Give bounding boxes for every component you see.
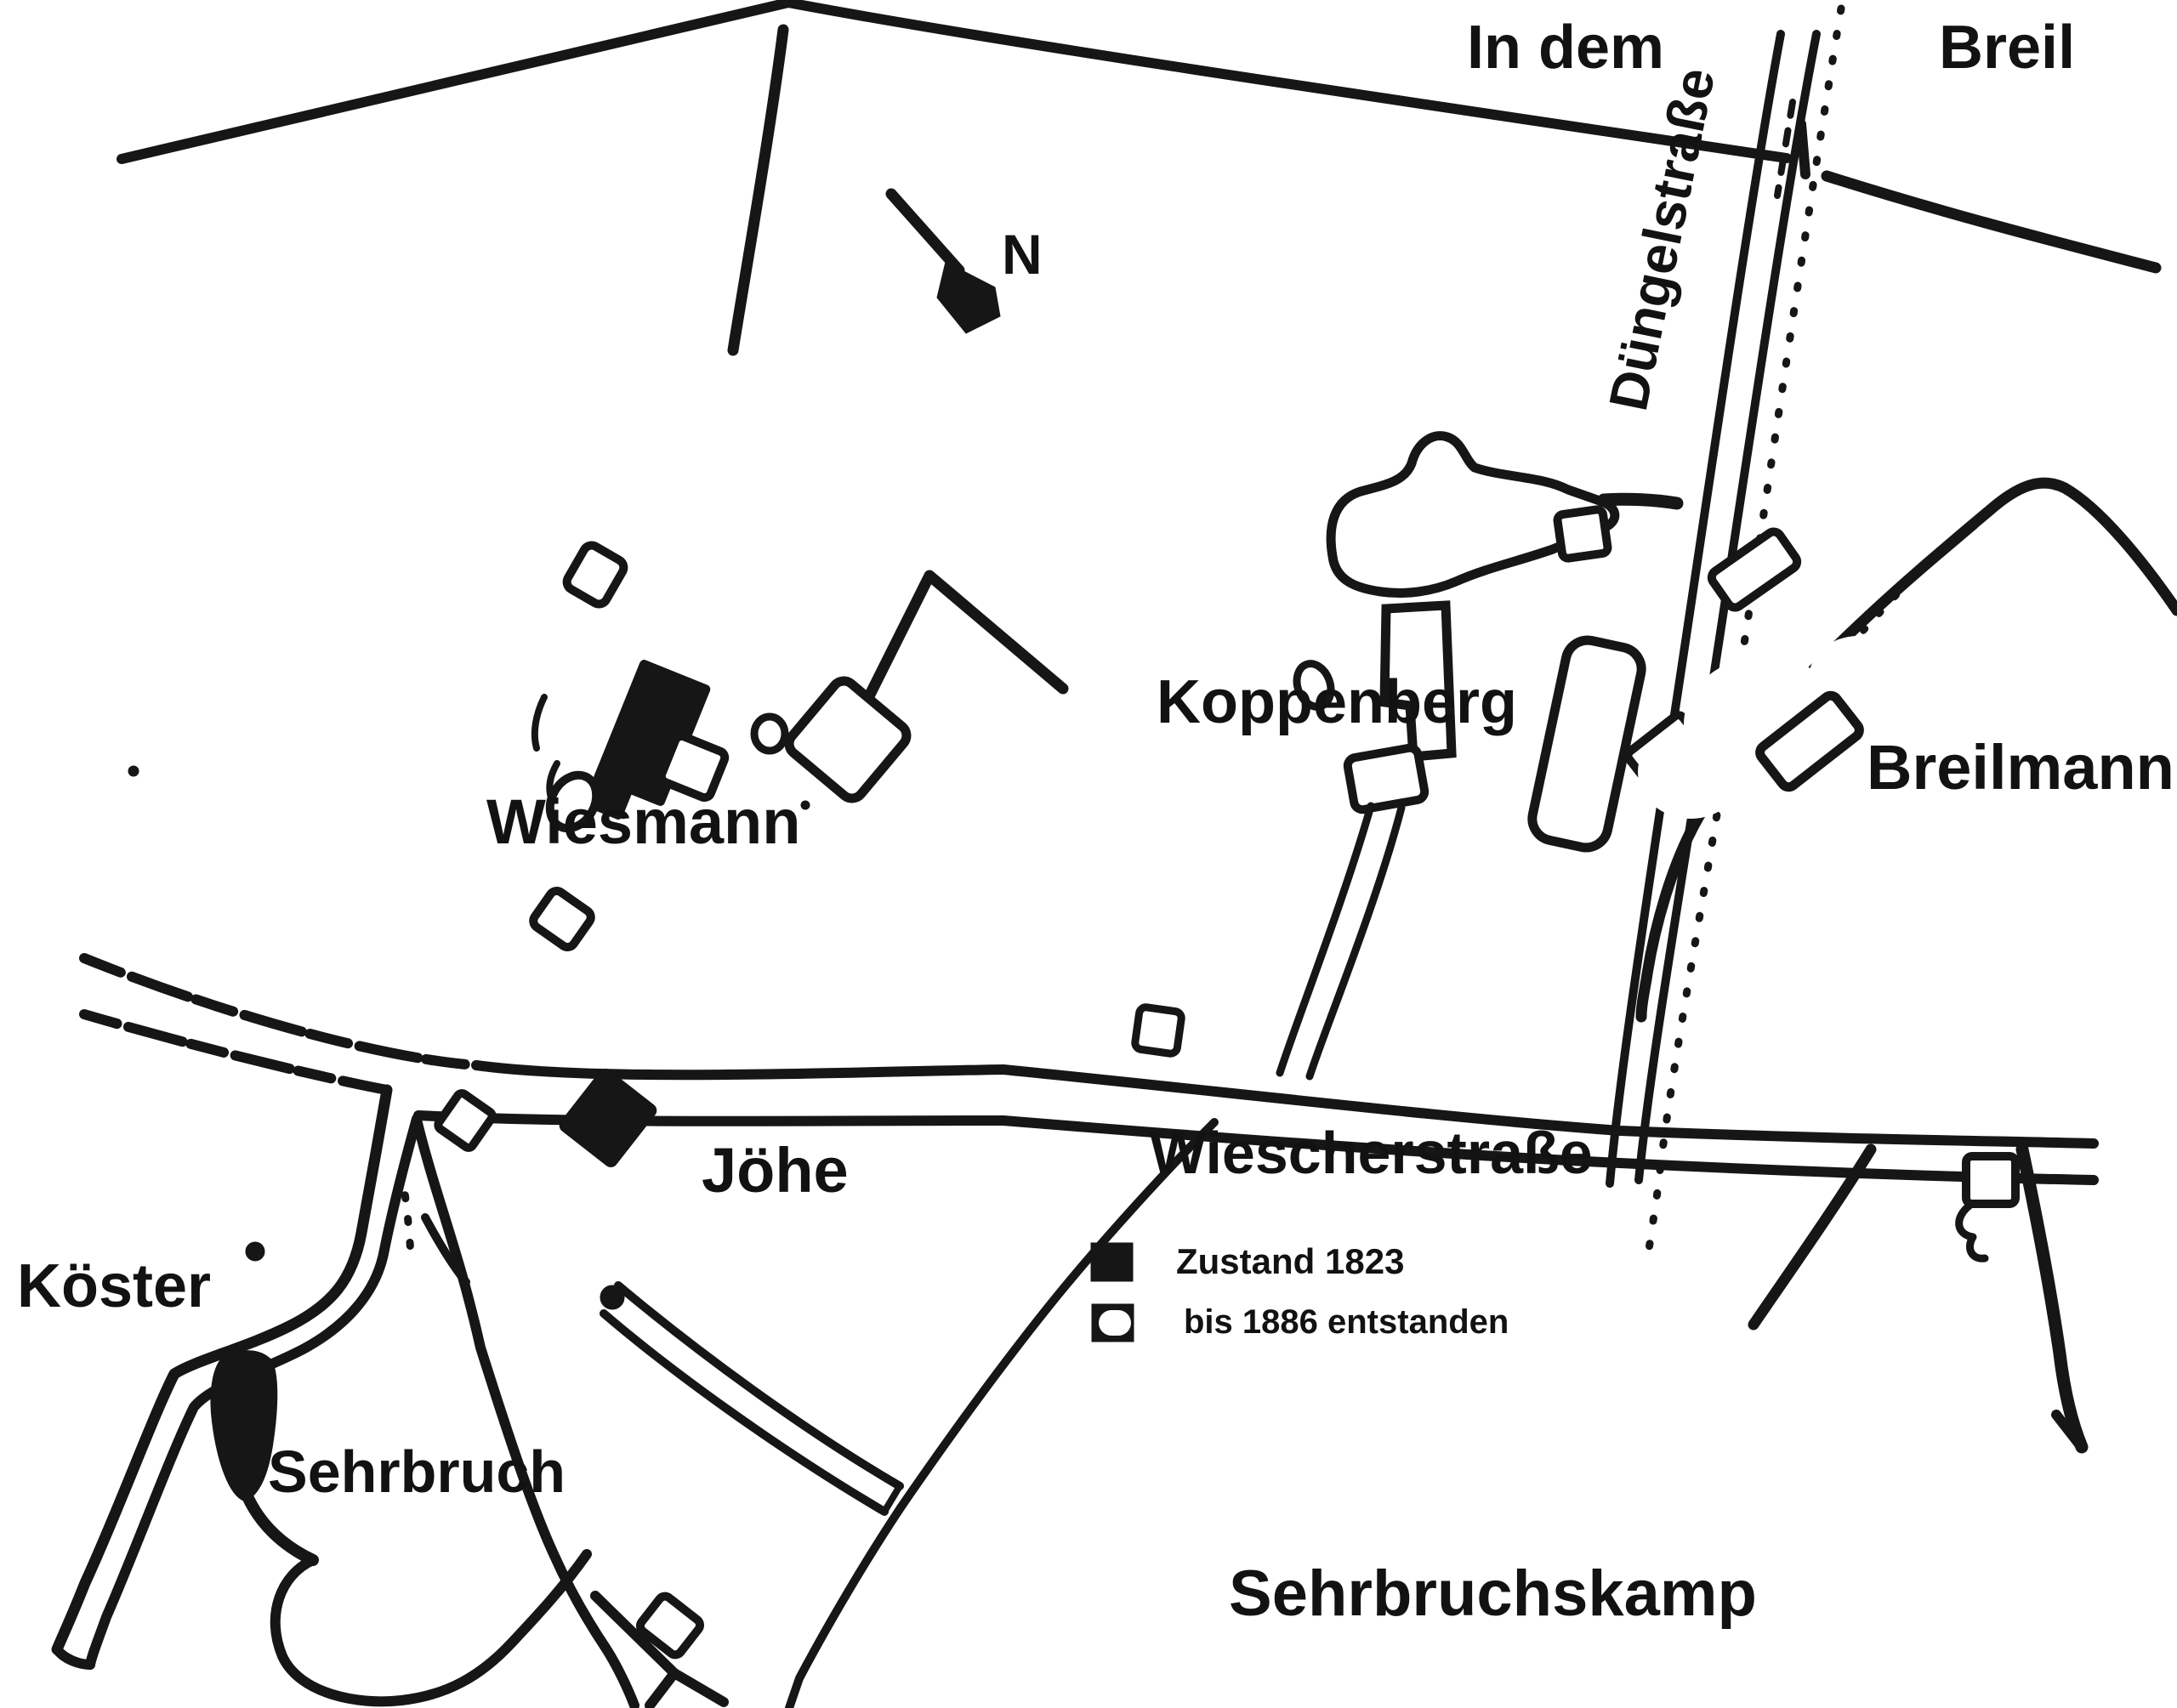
wiesmann-small-circle [754, 717, 785, 751]
legend-symbol-filled-square [1091, 1243, 1133, 1281]
label-wiesmann: Wiesmann [486, 786, 800, 857]
wiesmann-outline-square-north [564, 542, 627, 607]
north-arrow-shaft [891, 194, 959, 270]
wiescherstrasse-south-line-west [84, 1014, 387, 1090]
koppenberg-nw-outline [1346, 746, 1425, 811]
label-koester: Köster [17, 1252, 211, 1320]
joehe-building-1823 [557, 1066, 659, 1169]
map-labels: In dem Breil Düngelstraße Koppenberg Bre… [17, 14, 2174, 1630]
long-diagonal-boundary [789, 1122, 1214, 1708]
label-wiescherstrasse: Wiescherstraße [1150, 1120, 1593, 1186]
boundary-line-east [1827, 176, 2156, 268]
label-sehrbruch: Sehrbruch [268, 1438, 566, 1505]
southeast-roads [1754, 1149, 2082, 1447]
map-speck-b [128, 766, 139, 776]
label-koppenberg: Koppenberg [1157, 668, 1517, 736]
path-start-blob [600, 1285, 624, 1309]
double-path-upper [618, 1285, 900, 1486]
legend-label-1823: Zustand 1823 [1176, 1241, 1404, 1281]
north-label: N [1002, 223, 1043, 286]
label-duengelstrasse: Düngelstraße [1597, 63, 1726, 416]
historical-map-svg: N Zustand 1823 bis 1886 entstanden In de… [0, 0, 2177, 1708]
wiescherstrasse-north-line-west [84, 958, 476, 1065]
small-outline-near-road [1134, 1007, 1182, 1054]
north-arrow-head [937, 262, 1000, 333]
outer-boundary-lines [122, 3, 2156, 350]
label-in-dem: In dem [1467, 14, 1664, 82]
sehrbruch-building-1823 [213, 1353, 275, 1499]
koester-road-end-hook [57, 1649, 90, 1665]
koppenberg-long-outline [1528, 636, 1646, 851]
legend: Zustand 1823 bis 1886 entstanden [1091, 1241, 1509, 1342]
fork-prong-right [674, 1673, 724, 1702]
wiesmann-outline-square-east [784, 676, 911, 803]
legend-symbol-outlined-square-inner [1099, 1310, 1131, 1336]
boundary-drop-from-apex [733, 30, 783, 350]
koppenberg-connector [1604, 499, 1677, 503]
boundary-line-northwest [122, 3, 788, 159]
wiesmann-outline-square-south [531, 888, 594, 950]
road-wiescherstrasse [84, 958, 2094, 1180]
koppenberg-outline-square [1557, 508, 1609, 559]
wiesmann-fragment-a [535, 697, 544, 748]
branch-building-tail [1959, 1206, 1985, 1258]
fork-prong-left [650, 1673, 674, 1705]
breilmann-outline-c [1708, 529, 1799, 610]
label-breil: Breil [1939, 14, 2075, 82]
north-arrow: N [891, 194, 1043, 333]
junction-building-outline [436, 1092, 494, 1149]
erased-patch-2 [1638, 725, 1743, 819]
label-joehe: Jöhe [702, 1135, 849, 1206]
map-speck-a [801, 801, 810, 809]
map-dot-koester [246, 1242, 264, 1261]
double-path-lower [604, 1314, 884, 1512]
koppenberg-buildings [1134, 436, 1677, 1076]
wiesmann-bent-line [870, 576, 1063, 695]
label-breilmann: Breilmann [1867, 732, 2174, 803]
legend-label-1886: bis 1886 entstanden [1184, 1303, 1509, 1341]
sehrbruch-valley-curve [276, 1554, 587, 1701]
branch-building-outline [1966, 1156, 2015, 1204]
wiesmann-buildings [128, 542, 1063, 950]
branch-road-south [2022, 1149, 2082, 1447]
road-to-sehrbruchskamp [417, 1120, 724, 1705]
label-sehrbruchskamp: Sehrbruchskamp [1229, 1558, 1757, 1630]
curved-field-road [417, 1120, 634, 1705]
map-canvas: N Zustand 1823 bis 1886 entstanden In de… [0, 0, 2177, 1708]
